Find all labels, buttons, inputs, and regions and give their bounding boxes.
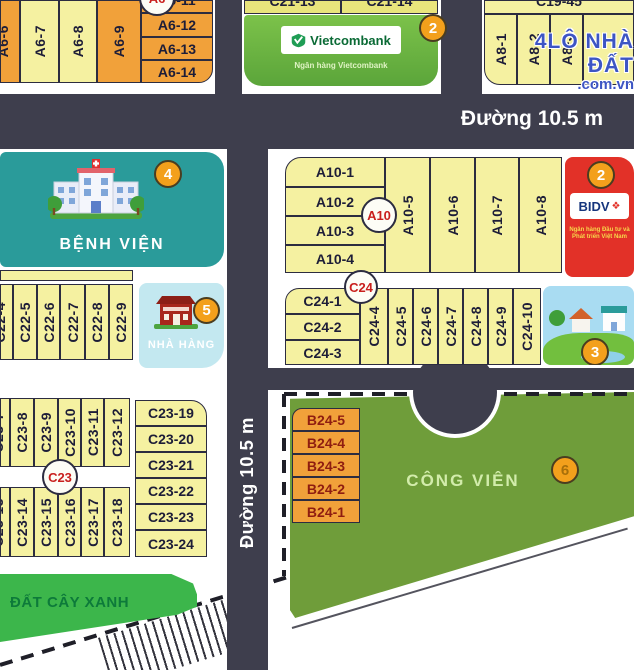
plot-c23-17: C23-17 [81, 487, 104, 557]
plot-a6-6: A6-6 [0, 0, 20, 83]
scene-badge: 3 [581, 338, 609, 365]
plot-c23-15: C23-15 [34, 487, 58, 557]
plot-a6-9: A6-9 [97, 0, 141, 83]
plot-c23-14: C23-14 [10, 487, 34, 557]
scene-block: 3 [543, 286, 634, 365]
scene-house-2-roof [601, 306, 627, 313]
vietcombank-shield-icon [291, 33, 306, 48]
road-horizontal-lower [268, 368, 634, 390]
bidv-logo-box: BIDV ❖ [570, 193, 629, 219]
plot-c23-8: C23-8 [10, 398, 34, 467]
plot-c23-10: C23-10 [58, 398, 81, 467]
plot-c23-22: C23-22 [135, 478, 207, 504]
plot-c24-7: C24-7 [438, 288, 463, 365]
plot-b24-2: B24-2 [292, 477, 360, 500]
plot-b24-3: B24-3 [292, 454, 360, 477]
a10-block-circle: A10 [361, 197, 397, 233]
plot-c23-23: C23-23 [135, 504, 207, 530]
plot-c24-9: C24-9 [488, 288, 513, 365]
restaurant-label: NHÀ HÀNG [139, 339, 224, 351]
plot-a6-7: A6-7 [20, 0, 59, 83]
plot-c24-2: C24-2 [285, 314, 360, 340]
c23-block-circle: C23 [42, 459, 78, 495]
plot-c22-7: C22-7 [60, 284, 85, 360]
road-vertical-left-top [215, 0, 242, 96]
plot-c22-5: C22-5 [13, 284, 37, 360]
plot-c22-top-strip [0, 270, 133, 281]
plot-c22-8: C22-8 [85, 284, 109, 360]
plot-c21-13: C21-13 [244, 0, 341, 14]
plot-b24-5: B24-5 [292, 408, 360, 431]
plot-c22-4: C22-4 [0, 284, 13, 360]
plot-c23-20: C23-20 [135, 426, 207, 452]
restaurant-badge: 5 [193, 297, 220, 324]
plot-c24-6: C24-6 [413, 288, 438, 365]
scene-house-1-roof [569, 308, 593, 319]
plot-a10-4: A10-4 [285, 245, 385, 273]
plot-c23-19: C23-19 [135, 400, 207, 426]
plot-c23-21: C23-21 [135, 452, 207, 478]
watermark-line1: 4LÔ NHÀ ĐẤT [492, 30, 634, 78]
land-plot-map: CÔNG VIÊN 6 Đường 10.5 m Đường 10.5 m A6… [0, 0, 634, 670]
hospital-label: BỆNH VIỆN [0, 236, 224, 254]
plot-partial-top-right: C19-45 [484, 0, 634, 14]
plot-b24-1: B24-1 [292, 500, 360, 523]
plot-a10-7: A10-7 [475, 157, 519, 273]
plot-c23-16: C23-16 [58, 487, 81, 557]
plot-c24-10: C24-10 [513, 288, 541, 365]
scene-tree [549, 310, 565, 326]
hospital-block: BỆNH VIỆN [0, 152, 224, 267]
vietcombank-name: Vietcombank [310, 33, 391, 48]
restaurant-block: NHÀ HÀNG [139, 283, 224, 368]
road-vertical-right-top [441, 0, 482, 96]
bidv-name: BIDV [578, 199, 609, 214]
vietcombank-logo-box: Vietcombank [281, 26, 401, 54]
plot-c23-13: C23-13 [0, 487, 10, 557]
park-badge: 6 [551, 456, 579, 484]
plot-a10-1: A10-1 [285, 157, 385, 187]
plot-a10-6: A10-6 [430, 157, 475, 273]
plot-c24-8: C24-8 [463, 288, 488, 365]
plot-c23-12: C23-12 [104, 398, 130, 467]
vietcombank-badge: 2 [419, 14, 447, 42]
plot-c23-24: C23-24 [135, 530, 207, 557]
plot-c24-5: C24-5 [388, 288, 413, 365]
plot-b24-4: B24-4 [292, 431, 360, 454]
scene-house-2-door [611, 322, 617, 331]
plot-a10-8: A10-8 [519, 157, 562, 273]
plot-c23-18: C23-18 [104, 487, 130, 557]
plot-a6-12: A6-12 [141, 13, 213, 37]
plot-c23-11: C23-11 [81, 398, 104, 467]
road-middle-label: Đường 10.5 m [235, 390, 259, 576]
green-strip-label: ĐẤT CÂY XANH [10, 594, 129, 611]
vietcombank-block: Vietcombank Ngân hàng Vietcombank [244, 15, 438, 86]
scene-house-1-body [572, 319, 590, 332]
c24-block-circle: C24 [344, 270, 378, 304]
watermark-line2: .com.vn [492, 76, 634, 93]
plot-c21-14: C21-14 [341, 0, 438, 14]
hospital-badge: 4 [154, 160, 182, 188]
park-boundary-dash-left [282, 394, 286, 576]
bidv-logo-icon: ❖ [612, 201, 621, 212]
watermark: 4LÔ NHÀ ĐẤT .com.vn [492, 30, 634, 93]
plot-c22-6: C22-6 [37, 284, 60, 360]
plot-c24-3: C24-3 [285, 340, 360, 365]
plot-c23-7: C23-7 [0, 398, 10, 467]
hospital-icon [48, 158, 144, 222]
plot-c22-9: C22-9 [109, 284, 133, 360]
plot-a6-13: A6-13 [141, 37, 213, 60]
park-label: CÔNG VIÊN [388, 471, 538, 491]
plot-a6-8: A6-8 [59, 0, 97, 83]
bidv-subtitle: Ngân hàng Đầu tư và Phát triển Việt Nam [567, 227, 632, 241]
plot-c23-9: C23-9 [34, 398, 58, 467]
plot-a6-14: A6-14 [141, 60, 213, 83]
road-top-label: Đường 10.5 m [430, 107, 634, 131]
bidv-badge: 2 [587, 161, 615, 189]
vietcombank-subtitle: Ngân hàng Vietcombank [244, 61, 438, 70]
